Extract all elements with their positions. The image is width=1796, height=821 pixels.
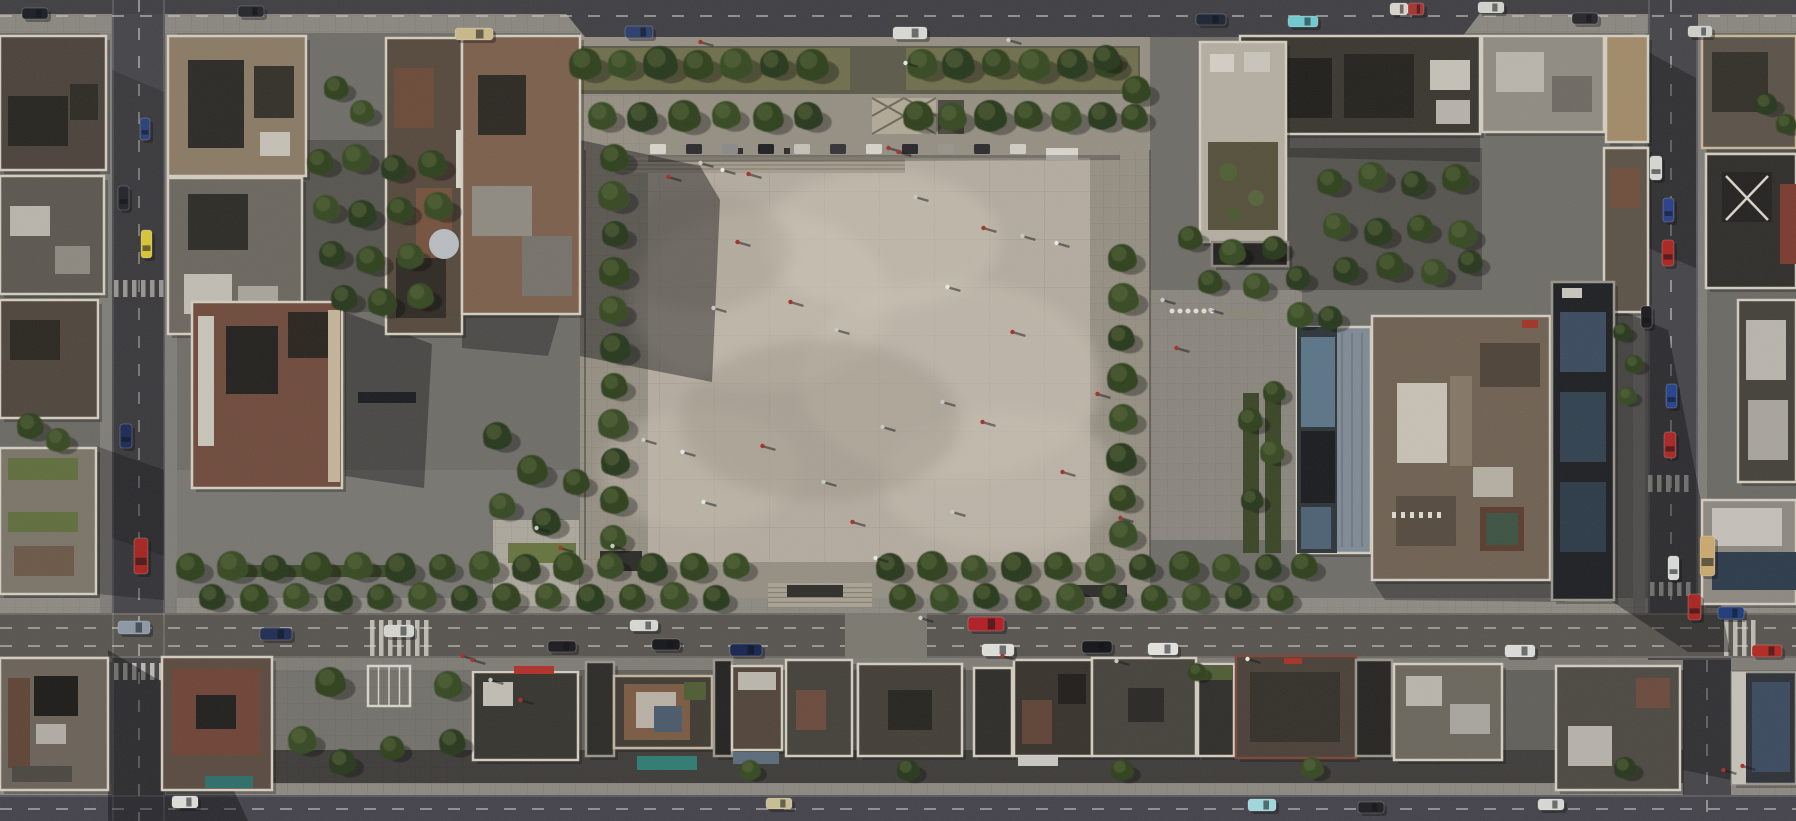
- scene-canvas: [0, 0, 1796, 821]
- photo-grain-overlay: [0, 0, 1796, 821]
- aerial-city-photo: [0, 0, 1796, 821]
